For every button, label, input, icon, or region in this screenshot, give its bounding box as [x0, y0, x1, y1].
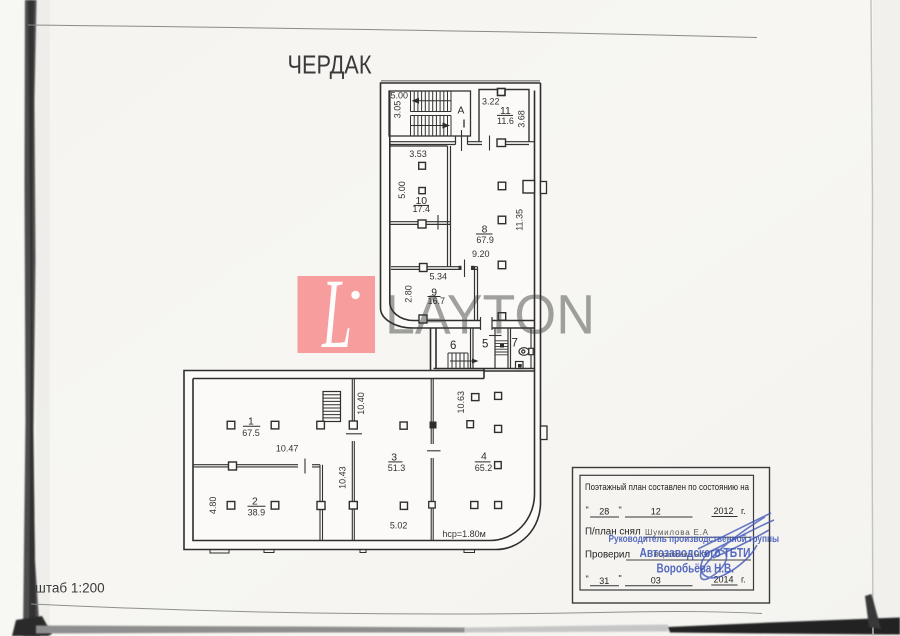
svg-text:11.6: 11.6: [497, 116, 514, 126]
svg-text:9.20: 9.20: [472, 249, 490, 259]
svg-text:3.22: 3.22: [482, 97, 500, 107]
svg-text:3.05: 3.05: [393, 101, 403, 119]
svg-text:4.80: 4.80: [208, 497, 218, 515]
svg-text:51.3: 51.3: [388, 463, 406, 473]
svg-text:10.47: 10.47: [276, 444, 299, 454]
svg-text:4: 4: [481, 452, 487, 463]
svg-text:5.34: 5.34: [430, 271, 448, 281]
svg-text:L: L: [321, 258, 352, 369]
svg-text:5.00: 5.00: [391, 90, 409, 100]
svg-text:2012: 2012: [714, 506, 734, 516]
svg-text:ЧЕРДАК: ЧЕРДАК: [288, 52, 372, 80]
svg-text:Поэтажный план составлен по со: Поэтажный план составлен по состоянию на: [585, 482, 750, 492]
svg-text:65.2: 65.2: [475, 463, 493, 473]
svg-text:Проверил: Проверил: [585, 550, 630, 561]
svg-text:67.9: 67.9: [476, 235, 494, 245]
svg-text:": ": [619, 574, 622, 584]
svg-text:г.: г.: [741, 506, 746, 516]
svg-text:A: A: [458, 105, 465, 116]
svg-text:38.9: 38.9: [248, 507, 266, 517]
svg-text:5.00: 5.00: [397, 181, 407, 199]
svg-text:10.63: 10.63: [456, 391, 466, 414]
svg-text:5.02: 5.02: [390, 520, 408, 530]
svg-text:3.53: 3.53: [409, 149, 427, 159]
svg-text:3.68: 3.68: [517, 110, 527, 128]
svg-text:": ": [586, 505, 589, 515]
svg-text:67.5: 67.5: [242, 428, 260, 438]
svg-text:": ": [586, 574, 589, 584]
svg-text:штаб 1:200: штаб 1:200: [35, 581, 105, 596]
svg-text:10.40: 10.40: [356, 392, 366, 415]
svg-text:12: 12: [651, 507, 661, 517]
svg-text:17.4: 17.4: [413, 204, 431, 214]
svg-text:Воробьёва Н.В.: Воробьёва Н.В.: [657, 561, 735, 575]
svg-text:hср=1.80м: hср=1.80м: [442, 529, 485, 539]
svg-text:03: 03: [651, 576, 661, 586]
svg-text:31: 31: [599, 576, 609, 586]
svg-text:LAYTON: LAYTON: [385, 284, 595, 346]
svg-text:11.35: 11.35: [515, 209, 525, 231]
svg-text:28: 28: [599, 507, 609, 517]
svg-text:10.43: 10.43: [338, 466, 348, 489]
svg-text:г.: г.: [741, 574, 746, 584]
svg-text:": ": [619, 505, 622, 515]
